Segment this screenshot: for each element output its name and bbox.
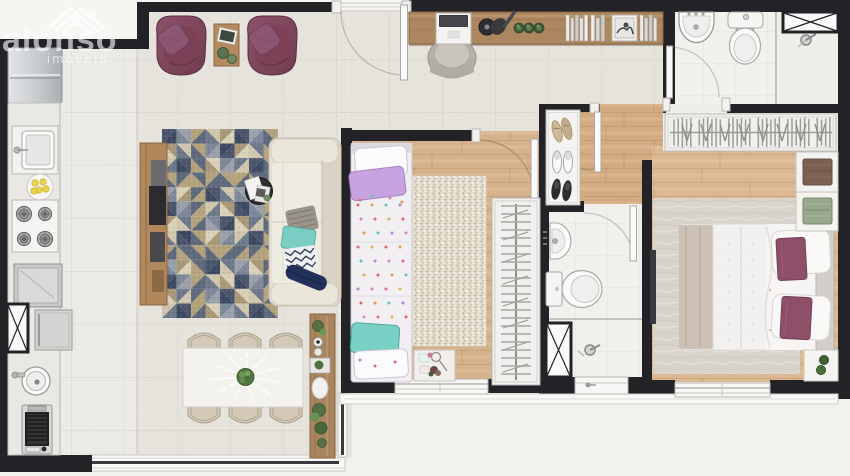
svg-text:imóveis: imóveis [47,51,109,66]
